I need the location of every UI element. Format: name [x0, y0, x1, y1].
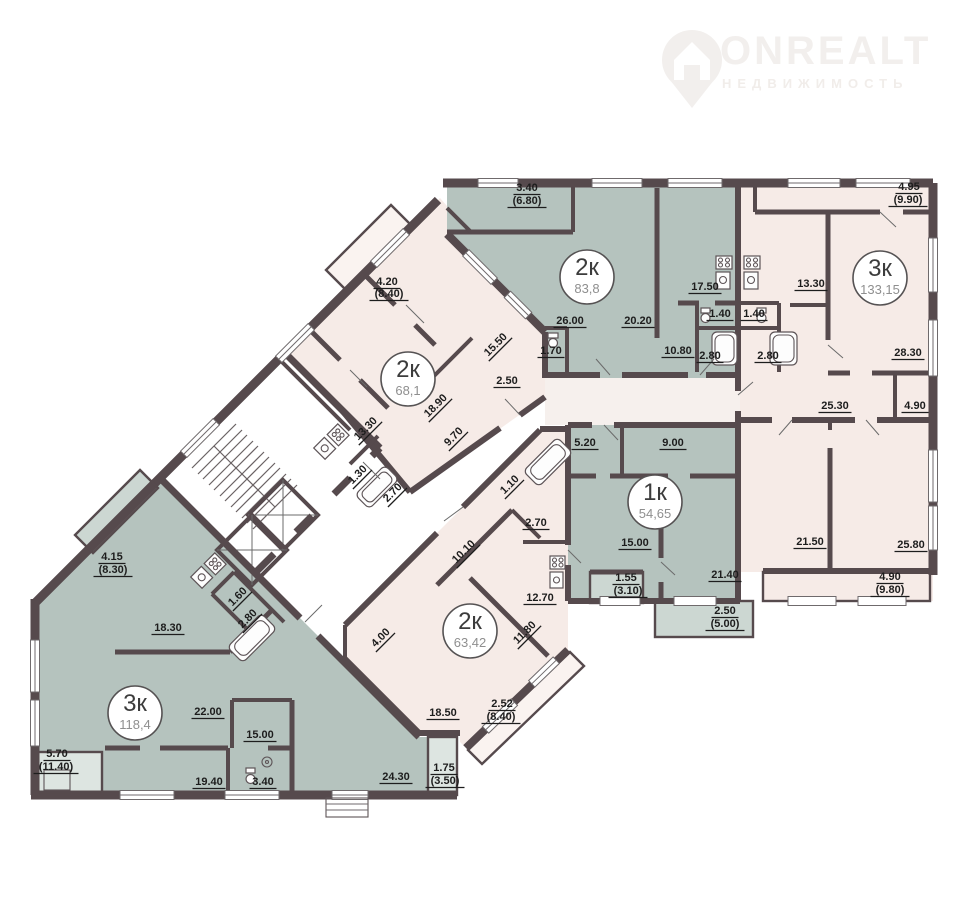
- stove-icon: [550, 556, 565, 569]
- room-area-label: 1.55: [613, 572, 640, 585]
- svg-text:24.30: 24.30: [382, 771, 410, 783]
- svg-text:4.20: 4.20: [376, 276, 397, 288]
- room-area-label: (8.40): [370, 288, 409, 301]
- room-area-label: 2.52: [489, 698, 516, 711]
- room-area-label: (6.80): [508, 195, 547, 208]
- svg-text:1к: 1к: [643, 479, 667, 506]
- svg-text:2к: 2к: [458, 608, 482, 635]
- svg-text:2.80: 2.80: [699, 350, 720, 362]
- svg-text:(5.00): (5.00): [711, 618, 740, 630]
- room-area-label: 21.50: [794, 536, 827, 549]
- entry-steps: [326, 798, 368, 817]
- apartment-badge: 2к83,8: [560, 250, 614, 304]
- svg-text:(3.10): (3.10): [614, 585, 643, 597]
- svg-text:(8.40): (8.40): [487, 711, 516, 723]
- room-area-label: 12.70: [524, 592, 557, 605]
- room-area-label: 25.30: [819, 400, 852, 413]
- svg-text:4.95: 4.95: [898, 181, 919, 193]
- svg-text:1.70: 1.70: [540, 345, 561, 357]
- svg-text:2.50: 2.50: [496, 375, 517, 387]
- svg-text:(6.80): (6.80): [513, 195, 542, 207]
- svg-text:18.30: 18.30: [154, 622, 182, 634]
- room-area-label: 9.00: [660, 437, 687, 450]
- svg-text:15.00: 15.00: [621, 537, 649, 549]
- svg-text:133,15: 133,15: [860, 282, 900, 297]
- svg-text:9.00: 9.00: [662, 437, 683, 449]
- floorplan-svg: ONREALT НЕДВИЖИМОСТЬ: [0, 0, 960, 910]
- room-area-label: (3.50): [426, 775, 465, 788]
- svg-text:2.70: 2.70: [525, 517, 546, 529]
- room-area-label: 1.40: [741, 308, 768, 321]
- room-area-label: 18.50: [427, 707, 460, 720]
- svg-text:25.30: 25.30: [821, 400, 849, 412]
- room-area-label: 20.20: [622, 315, 655, 328]
- room-area-label: 5.70: [44, 748, 71, 761]
- svg-text:22.00: 22.00: [194, 706, 222, 718]
- room-area-label: 15.00: [244, 729, 277, 742]
- svg-text:3.40: 3.40: [516, 182, 537, 194]
- svg-text:83,8: 83,8: [574, 281, 599, 296]
- room-area-label: (9.80): [871, 584, 910, 597]
- svg-text:(8.40): (8.40): [375, 288, 404, 300]
- svg-text:21.50: 21.50: [796, 536, 824, 548]
- room-area-label: (11.40): [34, 761, 79, 774]
- svg-text:(8.30): (8.30): [99, 564, 128, 576]
- svg-text:3.40: 3.40: [252, 776, 273, 788]
- stove-icon: [716, 256, 732, 269]
- room-area-label: (8.40): [482, 711, 521, 724]
- svg-text:(9.90): (9.90): [894, 194, 923, 206]
- room-area-label: 4.20: [374, 276, 401, 289]
- svg-text:1.40: 1.40: [709, 308, 730, 320]
- room-area-label: (8.30): [94, 564, 133, 577]
- svg-text:68,1: 68,1: [395, 383, 420, 398]
- room-area-label: 3.40: [250, 776, 277, 789]
- svg-text:5.70: 5.70: [46, 748, 67, 760]
- room-area-label: 19.40: [193, 776, 226, 789]
- brand-pin-icon: [662, 30, 722, 108]
- room-area-label: 2.50: [712, 605, 739, 618]
- room-area-label: 18.30: [152, 622, 185, 635]
- svg-text:3к: 3к: [123, 690, 147, 717]
- room-area-label: 1.75: [431, 762, 458, 775]
- svg-text:5.20: 5.20: [574, 437, 595, 449]
- svg-text:63,42: 63,42: [454, 635, 487, 650]
- room-area-label: 17.50: [689, 281, 722, 294]
- svg-text:2.80: 2.80: [757, 350, 778, 362]
- svg-text:(11.40): (11.40): [39, 761, 74, 773]
- watermark: ONREALT НЕДВИЖИМОСТЬ: [662, 29, 931, 108]
- room-area-label: 25.80: [895, 539, 928, 552]
- svg-text:1.55: 1.55: [615, 572, 636, 584]
- sink-icon: [550, 572, 563, 588]
- svg-text:(3.50): (3.50): [431, 775, 460, 787]
- room-area-label: (5.00): [706, 618, 745, 631]
- svg-text:15.00: 15.00: [246, 729, 274, 741]
- brand-name: ONREALT: [720, 29, 931, 73]
- svg-text:2к: 2к: [396, 356, 420, 383]
- room-area-label: 15.00: [619, 537, 652, 550]
- room-area-label: 2.80: [697, 350, 724, 363]
- svg-text:3к: 3к: [868, 255, 892, 282]
- sink-icon: [744, 272, 758, 289]
- svg-text:10.80: 10.80: [664, 345, 692, 357]
- svg-text:118,4: 118,4: [119, 717, 151, 732]
- room-area-label: 26.00: [554, 315, 587, 328]
- svg-text:4.90: 4.90: [879, 571, 900, 583]
- apartment-badge: 1к54,65: [628, 475, 682, 529]
- svg-text:28.30: 28.30: [894, 347, 922, 359]
- svg-text:4.90: 4.90: [904, 400, 925, 412]
- brand-tagline: НЕДВИЖИМОСТЬ: [722, 76, 908, 91]
- svg-text:2.50: 2.50: [714, 605, 735, 617]
- room-area-label: 4.90: [877, 571, 904, 584]
- room-area-label: 1.70: [538, 345, 565, 358]
- svg-text:17.50: 17.50: [691, 281, 719, 293]
- room-area-label: 2.80: [755, 350, 782, 363]
- room-area-label: 2.70: [523, 517, 550, 530]
- svg-text:21.40: 21.40: [711, 569, 739, 581]
- floorplan-canvas: ONREALT НЕДВИЖИМОСТЬ: [0, 0, 960, 910]
- room-area-label: 4.15: [99, 551, 126, 564]
- room-area-label: 21.40: [709, 569, 742, 582]
- room-area-label: 24.30: [380, 771, 413, 784]
- apartment-badge: 3к133,15: [853, 251, 907, 305]
- svg-text:1.40: 1.40: [743, 308, 764, 320]
- room-area-label: 1.40: [707, 308, 734, 321]
- svg-text:2.52: 2.52: [491, 698, 512, 710]
- common-corridor: [545, 378, 740, 425]
- room-area-label: 5.20: [572, 437, 599, 450]
- apartment-badge: 2к68,1: [381, 352, 435, 406]
- room-area-label: 28.30: [892, 347, 925, 360]
- stove-icon: [744, 256, 760, 269]
- room-area-label: 3.40: [514, 182, 541, 195]
- svg-text:19.40: 19.40: [195, 776, 223, 788]
- svg-text:54,65: 54,65: [639, 506, 672, 521]
- svg-text:18.50: 18.50: [429, 707, 457, 719]
- svg-text:(9.80): (9.80): [876, 584, 905, 596]
- svg-text:2к: 2к: [575, 254, 599, 281]
- svg-text:13.30: 13.30: [797, 278, 825, 290]
- apartment-badge: 2к63,42: [443, 604, 497, 658]
- svg-text:4.15: 4.15: [101, 551, 122, 563]
- room-area-label: 4.95: [896, 181, 923, 194]
- apartment-badge: 3к118,4: [108, 686, 162, 740]
- svg-text:20.20: 20.20: [624, 315, 652, 327]
- svg-text:26.00: 26.00: [556, 315, 584, 327]
- svg-text:1.75: 1.75: [433, 762, 454, 774]
- room-area-label: 10.80: [662, 345, 695, 358]
- room-area-label: 4.90: [902, 400, 929, 413]
- room-area-label: (9.90): [889, 194, 928, 207]
- room-area-label: 22.00: [192, 706, 225, 719]
- room-area-label: 13.30: [795, 278, 828, 291]
- svg-text:25.80: 25.80: [897, 539, 925, 551]
- svg-text:12.70: 12.70: [526, 592, 554, 604]
- room-area-label: (3.10): [609, 585, 648, 598]
- room-area-label: 2.50: [494, 375, 521, 388]
